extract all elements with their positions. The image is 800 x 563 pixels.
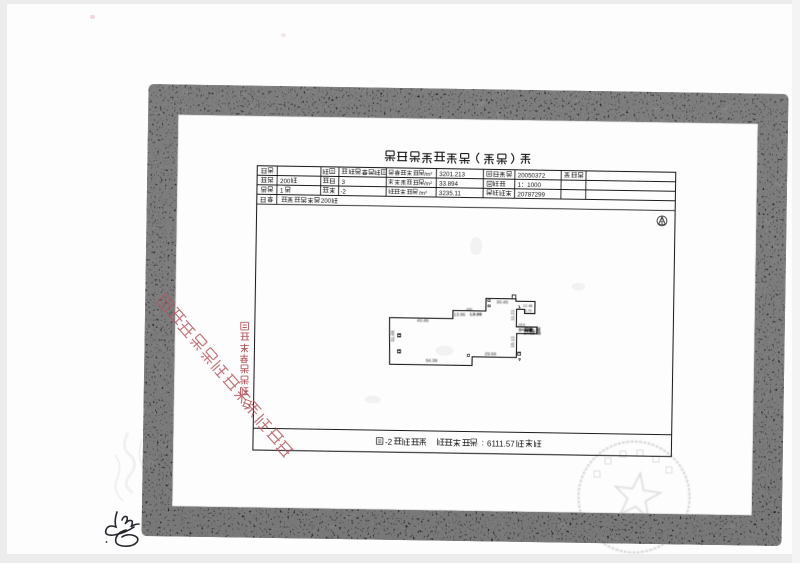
svg-text:200: 200 [321,198,332,205]
svg-text:13.96: 13.96 [454,311,466,316]
svg-text:48: 48 [537,331,541,335]
svg-text:-2: -2 [340,188,346,195]
svg-text:20050372: 20050372 [518,172,546,179]
svg-text:43.46: 43.46 [417,317,429,322]
svg-text:15.12: 15.12 [510,336,515,348]
svg-text:30.40: 30.40 [496,299,508,304]
svg-text:1：1000: 1：1000 [517,182,541,189]
svg-text:33.894: 33.894 [439,181,459,188]
svg-text:54.39: 54.39 [426,357,438,362]
svg-text:440: 440 [466,307,472,311]
svg-text:3235.11: 3235.11 [439,190,462,197]
svg-text:/m²: /m² [424,172,432,178]
svg-text:200: 200 [280,178,291,185]
svg-text:6.75: 6.75 [525,309,532,313]
svg-text:/m²: /m² [419,191,427,197]
svg-text:20787299: 20787299 [517,191,545,198]
svg-text:11.21: 11.21 [510,309,515,321]
svg-text:-2: -2 [385,438,393,447]
svg-text:31.05: 31.05 [390,330,395,342]
svg-text:3201.213: 3201.213 [439,171,465,178]
svg-text:/m²: /m² [424,181,432,187]
svg-text:3: 3 [342,179,346,186]
svg-text:24.6: 24.6 [518,323,525,327]
svg-text:12.48: 12.48 [523,304,533,308]
svg-text:29.56: 29.56 [485,351,497,356]
svg-text:L9.99: L9.99 [470,311,482,316]
svg-text:1: 1 [280,187,284,194]
svg-text:16: 16 [536,326,540,330]
svg-text:6111.57: 6111.57 [487,439,515,448]
